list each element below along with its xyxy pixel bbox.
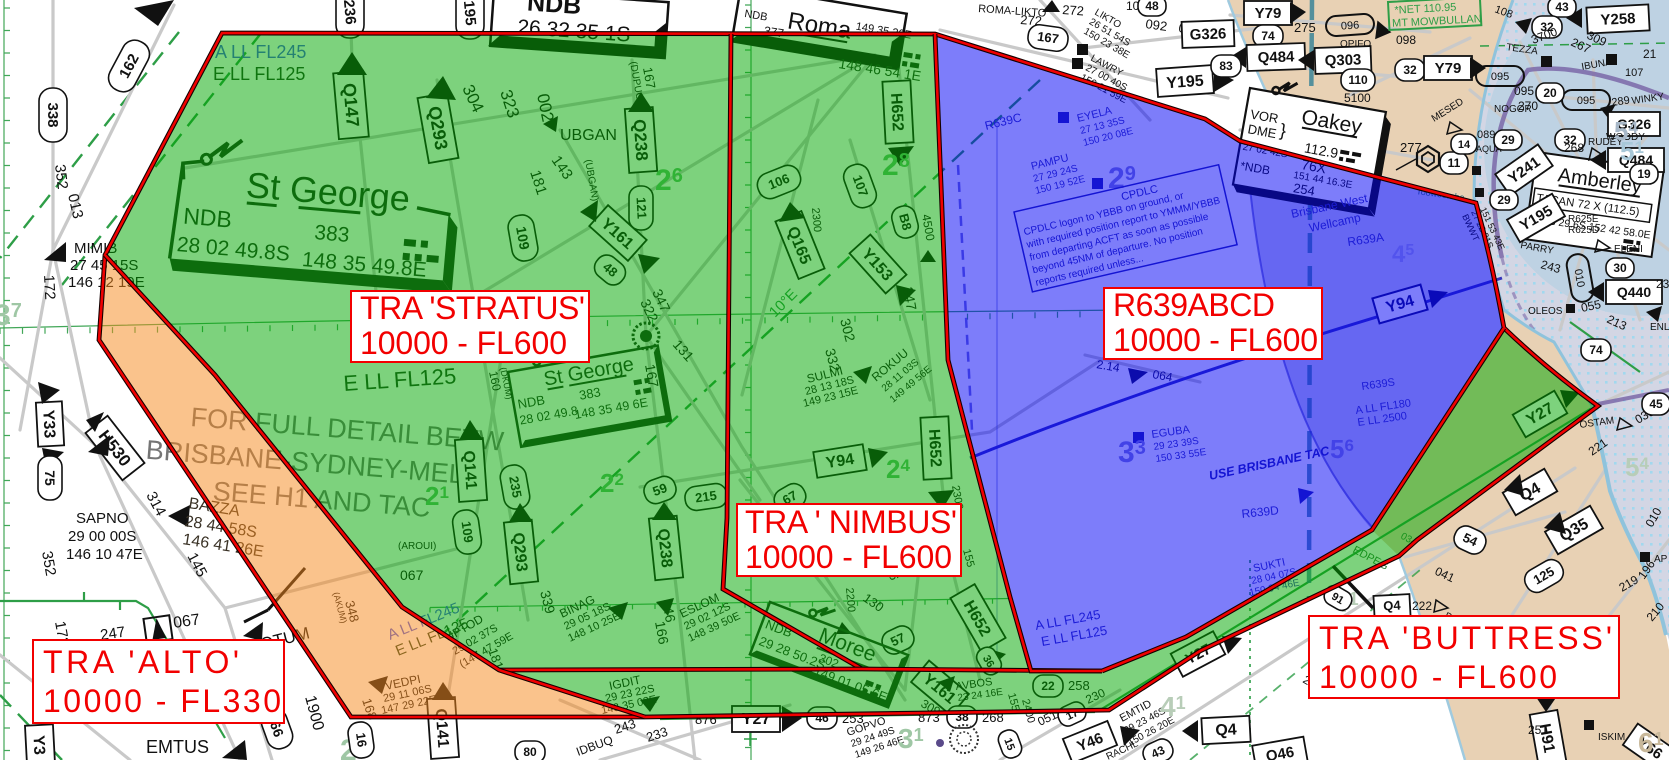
svg-text:Y258: Y258	[1600, 10, 1636, 29]
svg-text:23: 23	[1656, 277, 1669, 291]
svg-text:167: 167	[1036, 29, 1060, 47]
svg-text:275: 275	[1294, 20, 1316, 35]
svg-text:74: 74	[1261, 29, 1275, 43]
svg-text:095: 095	[1577, 95, 1595, 107]
svg-text:29: 29	[1497, 193, 1511, 207]
svg-text:5100: 5100	[1344, 91, 1371, 105]
svg-text:Q303: Q303	[1324, 51, 1361, 69]
svg-text:OLEOS: OLEOS	[1528, 306, 1563, 317]
svg-text:14: 14	[1458, 139, 1471, 151]
svg-text:ISKIM: ISKIM	[1598, 732, 1625, 743]
svg-text:096: 096	[1340, 19, 1359, 32]
svg-text:30: 30	[1613, 261, 1627, 275]
svg-text:Y33: Y33	[39, 409, 57, 438]
svg-text:10000 - FL600: 10000 - FL600	[1113, 322, 1318, 358]
svg-text:48: 48	[1145, 0, 1159, 13]
svg-text:G326: G326	[1189, 25, 1226, 43]
svg-text:R625E: R625E	[1568, 214, 1599, 225]
svg-text:75: 75	[42, 470, 58, 486]
svg-text:146 10 47E: 146 10 47E	[66, 546, 143, 563]
svg-text:Y79: Y79	[1255, 5, 1282, 22]
svg-text:Y3: Y3	[30, 735, 48, 756]
svg-text:83: 83	[1219, 59, 1233, 73]
svg-text:NOGOR: NOGOR	[1494, 104, 1532, 115]
svg-text:Q484: Q484	[1257, 48, 1295, 66]
svg-text:Q440: Q440	[1617, 284, 1651, 300]
svg-text:29 00 00S: 29 00 00S	[68, 528, 136, 545]
svg-text:251: 251	[1528, 723, 1548, 737]
svg-text:236: 236	[340, 0, 359, 25]
svg-text:172: 172	[40, 274, 58, 300]
svg-text:TRA 'ALTO': TRA 'ALTO'	[43, 644, 239, 680]
svg-text:10000 - FL330: 10000 - FL330	[43, 683, 281, 719]
svg-text:16: 16	[353, 732, 370, 748]
svg-text:095: 095	[1514, 84, 1534, 98]
svg-text:R625D: R625D	[1568, 225, 1599, 236]
svg-text:ENLI: ENLI	[1650, 322, 1669, 333]
svg-text:43: 43	[1555, 0, 1569, 14]
svg-text:10000 - FL600: 10000 - FL600	[745, 539, 952, 575]
svg-text:Q4: Q4	[1215, 721, 1237, 739]
svg-text:195: 195	[460, 0, 479, 26]
svg-text:74: 74	[1589, 343, 1603, 357]
svg-text:19: 19	[1637, 167, 1651, 181]
svg-text:TRA 'STRATUS': TRA 'STRATUS'	[360, 290, 585, 326]
svg-text:092: 092	[1145, 16, 1169, 34]
svg-text:Y195: Y195	[1166, 73, 1205, 93]
svg-text:352: 352	[51, 163, 71, 190]
svg-text:20: 20	[1543, 86, 1557, 100]
svg-text:21: 21	[1643, 47, 1657, 61]
svg-text:ELENI: ELENI	[1614, 244, 1643, 255]
svg-text:45: 45	[1649, 397, 1663, 411]
svg-text:089: 089	[1477, 129, 1495, 141]
svg-text:80: 80	[523, 745, 537, 759]
svg-text:32: 32	[1403, 63, 1417, 77]
svg-text:R639ABCD: R639ABCD	[1113, 287, 1275, 323]
svg-text:AP: AP	[1654, 554, 1668, 565]
svg-text:098: 098	[1396, 33, 1416, 47]
svg-text:10000 - FL600: 10000 - FL600	[360, 325, 567, 361]
svg-text:Q4: Q4	[1383, 598, 1402, 614]
svg-text:EMTUS: EMTUS	[146, 737, 209, 757]
svg-text:110: 110	[1348, 73, 1368, 87]
svg-text:095: 095	[1491, 71, 1509, 83]
svg-text:222: 222	[1412, 599, 1432, 613]
svg-text:11: 11	[1448, 156, 1461, 170]
svg-text:29: 29	[1501, 133, 1515, 147]
svg-text:338: 338	[44, 102, 61, 127]
svg-text:TRA 'BUTTRESS': TRA 'BUTTRESS'	[1319, 620, 1612, 656]
svg-text:268: 268	[1564, 141, 1584, 155]
svg-text:Y79: Y79	[1435, 60, 1462, 77]
svg-text:272: 272	[1062, 2, 1085, 18]
svg-text:107: 107	[1625, 67, 1643, 79]
svg-text:10000 - FL600: 10000 - FL600	[1319, 659, 1557, 695]
svg-text:SAPNO: SAPNO	[76, 510, 129, 527]
svg-text:TRA ' NIMBUS': TRA ' NIMBUS'	[745, 504, 957, 540]
svg-text:289: 289	[1611, 95, 1631, 109]
